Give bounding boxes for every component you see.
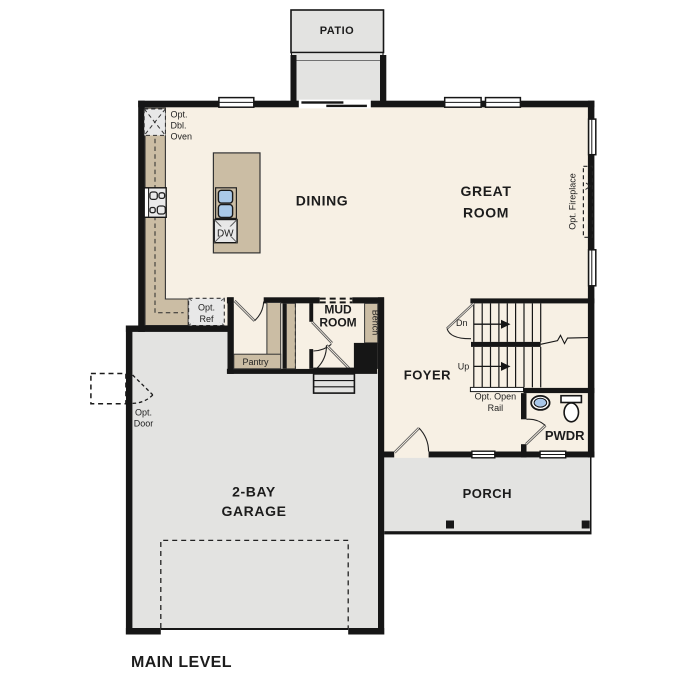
svg-text:GREAT: GREAT: [461, 183, 512, 199]
svg-text:Opt. Fireplace: Opt. Fireplace: [568, 173, 578, 230]
svg-text:GARAGE: GARAGE: [221, 503, 286, 519]
svg-text:ROOM: ROOM: [463, 205, 509, 221]
svg-text:Dbl.: Dbl.: [171, 121, 187, 131]
svg-text:PATIO: PATIO: [320, 25, 354, 37]
svg-text:Rail: Rail: [488, 403, 504, 413]
svg-text:Oven: Oven: [171, 132, 193, 142]
svg-text:Opt.: Opt.: [171, 110, 188, 120]
svg-text:ROOM: ROOM: [319, 316, 356, 330]
svg-text:Ref: Ref: [199, 314, 214, 324]
svg-text:PWDR: PWDR: [545, 428, 585, 443]
svg-text:DINING: DINING: [296, 193, 349, 209]
svg-text:Up: Up: [458, 361, 470, 371]
svg-text:MAIN LEVEL: MAIN LEVEL: [131, 654, 232, 671]
svg-text:Door: Door: [134, 419, 154, 429]
svg-text:2-BAY: 2-BAY: [232, 484, 276, 500]
svg-text:Bench: Bench: [370, 310, 380, 336]
svg-text:Opt.: Opt.: [198, 303, 215, 313]
svg-text:Dn: Dn: [456, 318, 468, 328]
svg-text:PORCH: PORCH: [463, 486, 512, 501]
svg-text:MUD: MUD: [324, 303, 352, 317]
svg-text:Pantry: Pantry: [242, 357, 269, 367]
svg-text:FOYER: FOYER: [404, 367, 451, 382]
svg-text:DW: DW: [217, 229, 234, 240]
svg-text:Opt. Open: Opt. Open: [475, 391, 517, 401]
svg-text:Opt.: Opt.: [135, 408, 152, 418]
